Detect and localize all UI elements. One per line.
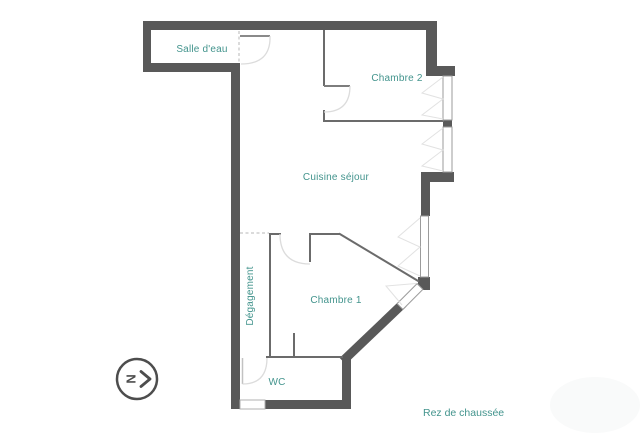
window-chambre2 bbox=[443, 76, 452, 120]
room-label-cuisine: Cuisine séjour bbox=[303, 172, 370, 183]
dashed-lines bbox=[239, 31, 269, 233]
door-leaves bbox=[240, 36, 350, 384]
floor-plan-canvas: Salle d'eau Chambre 2 Cuisine séjour Cha… bbox=[0, 0, 640, 442]
floor-level-label: Rez de chaussée bbox=[423, 407, 504, 419]
door-arcs bbox=[241, 36, 350, 384]
room-label-wc: WC bbox=[268, 377, 285, 388]
wall-left-main bbox=[231, 63, 240, 409]
room-label-salle-deau: Salle d'eau bbox=[176, 44, 227, 55]
compass-north-letter: N bbox=[124, 374, 139, 383]
window-cuisine-lower bbox=[421, 216, 429, 277]
door-arc-chambre1 bbox=[280, 234, 310, 264]
watermark bbox=[550, 377, 640, 433]
wall-topright-horizontal bbox=[426, 66, 455, 76]
door-arc-chambre2 bbox=[324, 86, 350, 112]
wall-top bbox=[143, 21, 437, 30]
room-label-chambre2: Chambre 2 bbox=[371, 73, 423, 84]
room-labels: Salle d'eau Chambre 2 Cuisine séjour Cha… bbox=[176, 44, 423, 388]
door-arc-wc bbox=[243, 358, 268, 384]
wall-midright-step-v bbox=[421, 182, 430, 216]
door-arc-salle-deau bbox=[241, 36, 270, 64]
compass-icon: N bbox=[117, 359, 157, 399]
window-mark-cuisine-lower bbox=[398, 218, 420, 276]
window-mark-chambre2 bbox=[422, 77, 443, 119]
floor-plan-page: Salle d'eau Chambre 2 Cuisine séjour Cha… bbox=[0, 0, 640, 442]
window-opening-marks bbox=[386, 77, 443, 305]
wall-salle-deau-bottom bbox=[143, 63, 240, 72]
window-mark-cuisine-upper bbox=[422, 128, 443, 171]
entrance-door-gap bbox=[240, 400, 265, 409]
window-chambre1-diagonal bbox=[397, 284, 423, 310]
wall-midright-step-h bbox=[421, 172, 454, 182]
room-label-degagement: Dégagement bbox=[245, 266, 256, 325]
window-cuisine-upper bbox=[443, 127, 452, 172]
room-label-chambre1: Chambre 1 bbox=[310, 295, 362, 306]
wall-topright-vertical bbox=[426, 30, 437, 67]
wall-window-divider bbox=[443, 120, 452, 127]
wall-diagonal bbox=[346, 307, 400, 359]
wall-wc-right bbox=[342, 356, 351, 409]
